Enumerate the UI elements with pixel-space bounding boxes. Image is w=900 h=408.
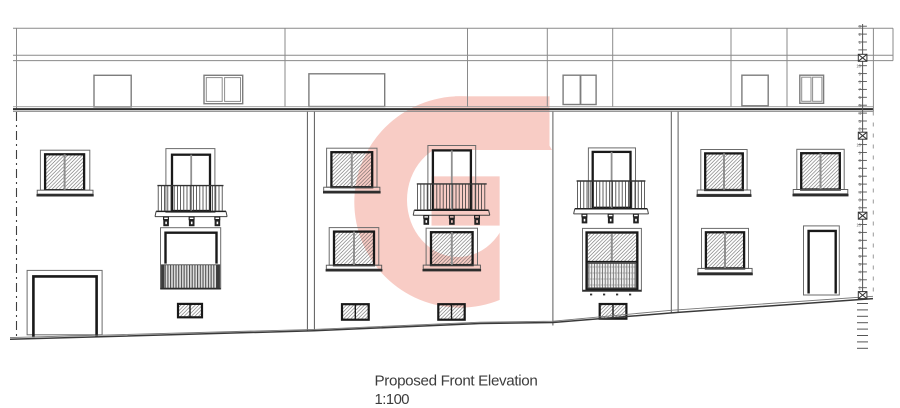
svg-text:Proposed Front Elevation: Proposed Front Elevation — [375, 373, 538, 390]
svg-text:1:100: 1:100 — [375, 392, 410, 408]
svg-text:10: 10 — [856, 222, 861, 227]
svg-text:10: 10 — [856, 64, 861, 69]
svg-text:10: 10 — [856, 142, 861, 147]
